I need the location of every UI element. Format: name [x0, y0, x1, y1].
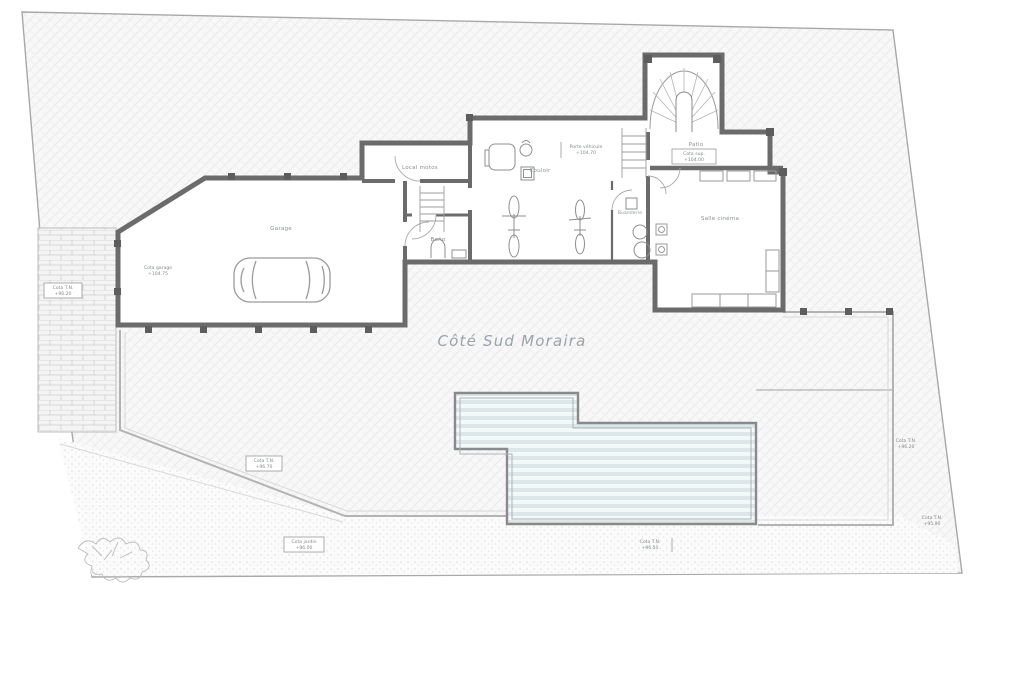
- svg-text:Cota garage: Cota garage: [144, 265, 172, 271]
- svg-text:Cota T.N.: Cota T.N.: [640, 539, 661, 545]
- svg-text:Cota T.N.: Cota T.N.: [53, 285, 74, 291]
- svg-text:Cota T.N.: Cota T.N.: [896, 438, 917, 444]
- plan-title: Côté Sud Moraira: [437, 332, 586, 350]
- svg-text:+104.00: +104.00: [684, 157, 704, 163]
- room-label-buanderie: Buanderie: [618, 210, 642, 216]
- floor-plan-drawing: Garage Local motos Couloir Baño Buanderi…: [0, 0, 1024, 683]
- svg-text:+96.70: +96.70: [255, 464, 272, 470]
- svg-text:Porte véhicule: Porte véhicule: [570, 143, 603, 150]
- svg-text:+104.75: +104.75: [148, 271, 168, 277]
- stone-wall: [38, 228, 116, 432]
- svg-text:+96.50: +96.50: [641, 545, 658, 551]
- room-label-patio: Patio: [689, 142, 704, 148]
- cote-patio: Cota sup. +104.00: [672, 149, 716, 164]
- room-label-couloir: Couloir: [529, 168, 551, 174]
- svg-text:Cota T.N.: Cota T.N.: [922, 515, 943, 521]
- cote-tn-mid: Cota T.N. +96.70: [246, 456, 282, 471]
- room-label-garage: Garage: [270, 226, 292, 232]
- svg-text:+96.20: +96.20: [54, 291, 71, 297]
- svg-text:Cota T.N.: Cota T.N.: [254, 458, 275, 464]
- svg-text:Cota jardin: Cota jardin: [291, 539, 316, 545]
- svg-text:Cota sup.: Cota sup.: [683, 151, 705, 157]
- svg-text:+96.20: +96.20: [897, 444, 914, 450]
- cote-jardin: Cota jardin +96.00: [284, 537, 324, 552]
- svg-text:+104.70: +104.70: [576, 150, 596, 156]
- svg-text:+96.00: +96.00: [295, 545, 312, 551]
- room-label-bano: Baño: [430, 237, 445, 243]
- room-label-local-motos: Local motos: [402, 165, 438, 171]
- cote-tn-left: Cota T.N. +96.20: [44, 283, 82, 298]
- room-label-cinema: Salle cinéma: [701, 215, 739, 222]
- floor-plan-page: Garage Local motos Couloir Baño Buanderi…: [0, 0, 1024, 683]
- svg-text:+95.90: +95.90: [923, 521, 940, 527]
